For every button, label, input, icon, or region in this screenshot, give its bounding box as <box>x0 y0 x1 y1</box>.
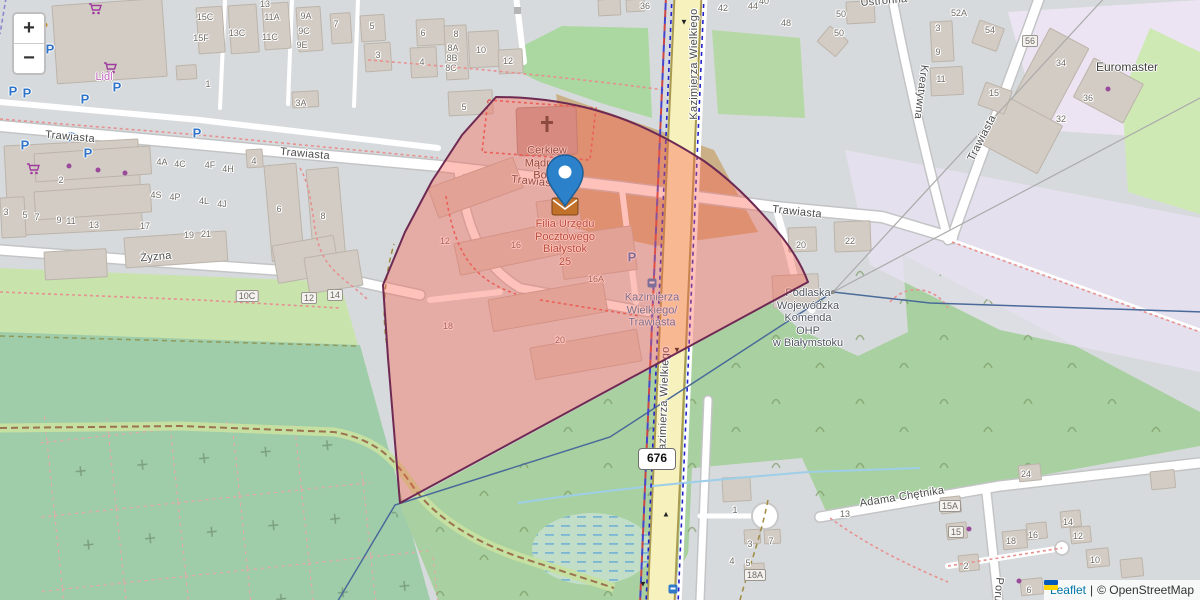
map-canvas[interactable]: PPPPPPPPPP▼▼▲▼ TrawiastaTrawiastaTrawias… <box>0 0 1200 600</box>
road-shield-676: 676 <box>638 448 676 470</box>
attribution-bar: Leaflet | © OpenStreetMap <box>1044 580 1200 600</box>
crossing-icon <box>514 7 521 14</box>
green-east-of-road <box>712 30 805 118</box>
ukraine-flag-icon <box>1044 580 1058 590</box>
base-map <box>0 0 1200 600</box>
attribution-separator: | <box>1090 580 1093 600</box>
zoom-control: + − <box>12 12 46 75</box>
marsh-pattern <box>532 513 652 585</box>
loop-road <box>752 503 778 529</box>
church-building <box>516 106 578 156</box>
osm-link[interactable]: © OpenStreetMap <box>1097 580 1194 600</box>
zoom-in-button[interactable]: + <box>14 14 44 44</box>
zoom-out-button[interactable]: − <box>14 44 44 73</box>
